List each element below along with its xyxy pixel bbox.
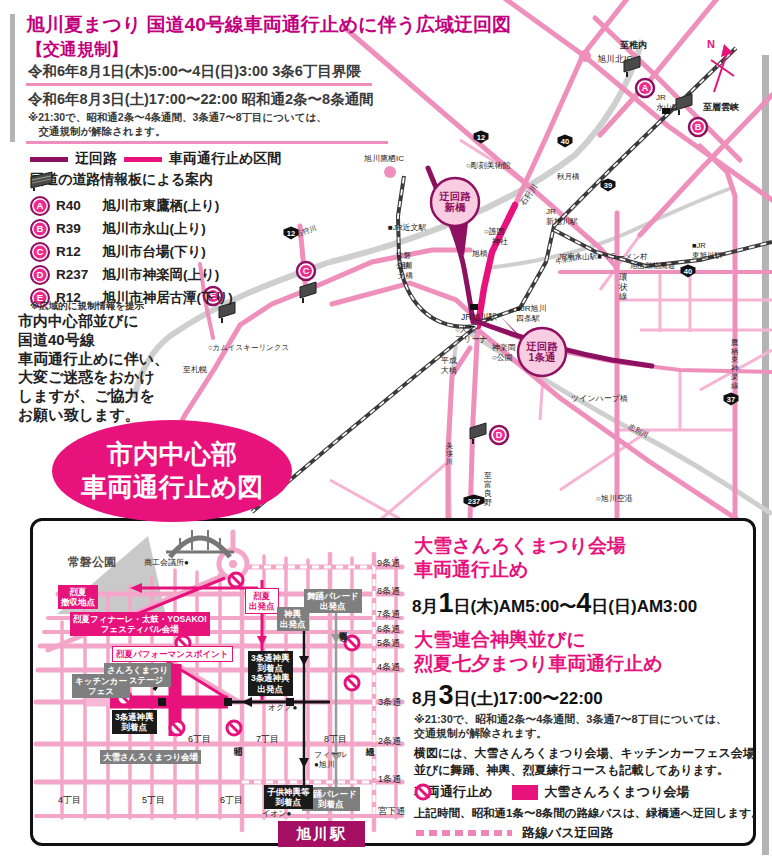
- apology-message: 市内中心部並びに国道40号線車両通行止めに伴い、大変ご迷惑をおかけしますが、ご協…: [18, 312, 169, 425]
- ellipse-line1: 市内中心部: [107, 439, 237, 470]
- no-entry-icon: [229, 573, 243, 587]
- venue-closure-heading-line1: 大雪さんろくまつり会場: [414, 534, 626, 558]
- bus-detour-line-sample: [416, 830, 512, 836]
- closed-label: 車両通行止め区間: [169, 150, 281, 168]
- no-entry-icon: [414, 783, 432, 801]
- no-entry-icon: [345, 636, 359, 650]
- date1-prefix: 8月: [412, 597, 438, 616]
- inset-text: 6丁目: [220, 795, 243, 805]
- inset-title-ellipse: 市内中心部 車両通行止め図: [52, 420, 292, 522]
- map-marker-letter: B: [695, 122, 702, 132]
- inset-text: オクノ●: [268, 703, 297, 712]
- regulation-note-line2: 交通規制が解除されます。: [28, 124, 327, 138]
- inset-text: イオン●: [262, 809, 291, 818]
- map-label: ■JR東旭川駅: [692, 241, 723, 260]
- route-shield-number: 40: [561, 137, 569, 146]
- venue-color-swatch: [512, 785, 538, 800]
- legend-lines-row: 迂回路 車両通行止め区間: [30, 150, 281, 168]
- legend-item: CR12旭川市台場(下り): [30, 240, 233, 263]
- no-entry-icon: [227, 721, 241, 735]
- map-label: 旭川鷹栖IC: [364, 154, 404, 163]
- inset-label: 旭川駅: [278, 821, 365, 847]
- no-entry-icon: [345, 676, 359, 690]
- map-label: ■JR近文駅: [388, 223, 427, 232]
- panel-paragraph: 横図には、大雪さんろくまつり会場、キッチンカーフェス会場 並びに舞踊、神輿、烈夏…: [414, 745, 755, 779]
- closed-line-sample: [124, 157, 162, 162]
- mikoshi-closure-heading-line1: 大雪連合神輿並びに: [414, 628, 663, 652]
- inset-text: 6条通: [377, 624, 400, 634]
- inset-label: 舞踊パレード出発点: [304, 589, 362, 613]
- station-square: [662, 108, 670, 114]
- inset-text: 4丁目: [58, 795, 81, 805]
- inset-text: 8条通: [377, 586, 400, 596]
- map-marker-letter: D: [496, 430, 503, 440]
- inset-text: 6丁目: [188, 734, 211, 744]
- date1-middle: 日(木)AM5:00〜: [454, 597, 577, 616]
- inset-text: 9条通: [377, 558, 400, 568]
- route-place: 旭川市台場(下り): [102, 243, 206, 261]
- map-label: ○カムイスキーリンクス: [208, 343, 289, 352]
- inset-label: 大雪さんろくまつり会場: [100, 750, 201, 764]
- legend-items: AR40旭川市東鷹栖(上り)BR39旭川市永山(上り)CR12旭川市台場(下り)…: [30, 194, 233, 309]
- inset-label: 子供神輿等到着点: [264, 785, 313, 809]
- route-shield-number: 12: [287, 229, 295, 238]
- map-label: 至富良野: [484, 471, 492, 507]
- venue-closure-heading: 大雪さんろくまつり会場 車両通行止め: [414, 534, 626, 583]
- inset-text: 1条通: [378, 774, 401, 784]
- north-label: N: [707, 38, 715, 50]
- inset-text: フィール: [314, 750, 347, 759]
- message-line: しますが、ご協力を: [18, 387, 169, 406]
- route-marker-A: A: [30, 196, 50, 216]
- regulation-note: ※21:30で、昭和通2条〜4条通間、3条通7〜8丁目については、 交通規制が解…: [28, 110, 327, 138]
- inset-text: 常磐公園: [68, 556, 116, 570]
- map-marker-letter: C: [303, 266, 310, 276]
- inset-label: キッチンカーフェス: [72, 674, 130, 698]
- rotary-center: [229, 560, 237, 568]
- underline: [26, 83, 372, 86]
- route-shield-number: 40: [684, 267, 692, 276]
- mikoshi-closure-heading: 大雪連合神輿並びに 烈夏七夕まつり車両通行止め: [414, 628, 663, 677]
- map-label: ツインハープ橋: [571, 394, 628, 403]
- inset-text: 宮下通: [378, 806, 405, 816]
- panel-note: ※21:30で、昭和通2条〜4条通間、3条通7〜8丁目については、 交通規制が解…: [414, 712, 727, 741]
- map-label: JR新旭川駅: [546, 207, 578, 226]
- bus-detour-label: 路線バス迂回路: [522, 824, 614, 842]
- closure-date-2: 8月3日(土)17:00〜22:00: [412, 680, 603, 711]
- route-marker-B: B: [30, 219, 50, 239]
- detour-callout-label: 迂回路1条通: [525, 340, 558, 363]
- route-place: 旭川市永山(上り): [102, 220, 206, 238]
- map-label: ○旭川空港: [596, 494, 633, 503]
- underline: [26, 141, 388, 144]
- inset-label: 烈夏撤収地点: [58, 585, 98, 609]
- map-label: 環状線: [618, 272, 628, 301]
- inset-text: 2条通: [378, 736, 401, 746]
- detour-label: 迂回路: [75, 150, 117, 168]
- message-line: 大変ご迷惑をおかけ: [18, 368, 169, 387]
- detour-line-sample: [30, 157, 68, 162]
- route-marker-D: D: [30, 265, 50, 285]
- venue-closure-heading-line2: 車両通行止め: [414, 558, 626, 582]
- date1-day-start: 1: [438, 588, 453, 618]
- inset-label: 烈夏パフォーマンスポイント: [112, 646, 233, 662]
- route-code: R40: [56, 198, 102, 213]
- road-info-board-icon: [300, 282, 316, 298]
- inset-legend-row: 車両通行止め 大雪さんろくまつり会場: [414, 783, 689, 801]
- route-shield-number: 39: [604, 181, 612, 190]
- inset-label: 3条通神輿到着点3条通神輿出発点: [248, 651, 293, 696]
- map-label: ○彫刻美術館: [466, 161, 511, 170]
- route-shield-number: 237: [468, 497, 481, 506]
- inset-text: 4条通: [377, 662, 400, 672]
- panel-paragraph-line1: 横図には、大雪さんろくまつり会場、キッチンカーフェス会場: [414, 745, 755, 762]
- date2-suffix: 日(土)17:00〜22:00: [454, 689, 603, 708]
- route-place: 旭川市東鷹栖(上り): [102, 197, 219, 215]
- date2-prefix: 8月: [412, 689, 438, 708]
- map-label: 平成大橋: [441, 356, 457, 375]
- message-line: 車両通行止めに伴い、: [18, 350, 169, 369]
- bus-note: 上記時間、昭和通1条〜8条間の路線バスは、緑橋通へ迂回します。: [414, 806, 762, 821]
- no-entry-icon: [170, 721, 184, 735]
- asahibashi-bridge-icon: [166, 530, 234, 557]
- legend-item: DR237旭川市神楽岡(上り): [30, 263, 233, 286]
- map-label: ■JR旭川四条駅: [516, 304, 547, 323]
- ellipse-line2: 車両通行止め図: [81, 472, 264, 503]
- ic-dot: [384, 166, 396, 178]
- inset-text: 3条通: [378, 697, 401, 707]
- date2-day: 3: [438, 680, 453, 710]
- route-shield-number: 37: [727, 395, 735, 404]
- mikoshi-closure-heading-line2: 烈夏七夕まつり車両通行止め: [414, 652, 663, 676]
- map-label: JR旭川駅: [461, 312, 497, 322]
- date1-suffix: 日(日)AM3:00: [591, 597, 697, 616]
- inset-text: 7条通: [377, 609, 400, 619]
- route-marker-C: C: [30, 242, 50, 262]
- inset-text: 商工会議所●: [144, 558, 189, 567]
- panel-note-line1: ※21:30で、昭和通2条〜4条通間、3条通7〜8丁目については、: [414, 712, 727, 726]
- panel-paragraph-line2: 並びに舞踊、神輿、烈夏練行コースも記載してあります。: [414, 762, 755, 779]
- map-label: 旭橋: [472, 249, 488, 258]
- map-label: 至層雲峡: [702, 102, 740, 112]
- regulation-line-2: 令和6年8月3日(土)17:00〜22:00 昭和通2条〜8条通間: [28, 90, 374, 109]
- map-label: 旭川大橋: [398, 261, 414, 280]
- map-label: ○ラーメン村: [605, 252, 648, 261]
- board-label: 国道の道路情報板による案内: [30, 171, 213, 189]
- inset-label: 3条通神輿到着点: [112, 710, 157, 734]
- route-code: R237: [56, 267, 102, 282]
- station-square: [470, 304, 478, 310]
- venue-label: 大雪さんろくまつり会場: [544, 783, 689, 801]
- map-marker-letter: A: [642, 83, 649, 93]
- inset-label: 神輿出発点: [277, 607, 309, 631]
- map-label: ○護国 神社: [484, 227, 508, 246]
- map-label: 旭山動物園通: [630, 261, 676, 270]
- date1-day-end: 4: [576, 588, 591, 618]
- route-code: R12: [56, 244, 102, 259]
- inset-text: 5条通: [377, 638, 400, 648]
- legend-board-row: 国道の道路情報板による案内: [30, 171, 213, 189]
- message-line: 国道40号線: [18, 331, 169, 350]
- panel-note-line2: 交通規制が解除されます。: [414, 726, 727, 740]
- message-line: 市内中心部並びに: [18, 312, 169, 331]
- legend-item: BR39旭川市永山(上り): [30, 217, 233, 240]
- section-heading: 【交通規制】: [26, 38, 128, 61]
- map-label: 美瑛川: [446, 442, 453, 465]
- page-title: 旭川夏まつり 国道40号線車両通行止めに伴う広域迂回図: [26, 12, 626, 38]
- inset-text: ●旭川: [314, 760, 335, 769]
- road-info-board-icon: [30, 171, 56, 191]
- poster: { "colors":{"heading_magenta":"#c2007d",…: [0, 0, 772, 859]
- inset-text: 7丁目: [256, 734, 279, 744]
- closure-date-1: 8月1日(木)AM5:00〜4日(日)AM3:00: [412, 588, 697, 619]
- route-code: R39: [56, 221, 102, 236]
- route-place: 旭川市神楽岡(上り): [102, 266, 219, 284]
- map-label: 至札幌: [183, 365, 207, 374]
- inset-label: 烈夏出発点: [245, 588, 279, 614]
- route-shield-number: 12: [477, 133, 485, 142]
- inset-text: 5丁目: [142, 795, 165, 805]
- regulation-line-1: 令和6年8月1日(木)5:00〜4日(日)3:00 3条6丁目界隈: [28, 62, 361, 81]
- inset-text: 8丁目: [324, 734, 347, 744]
- map-label: 鷹栖東神楽線: [730, 338, 739, 390]
- inset-label: 烈夏フィナーレ・太鼓・YOSAKOIフェスティバル会場: [70, 612, 210, 636]
- map-label: 至稚内: [619, 40, 647, 50]
- map-label: 秋月橋: [557, 172, 580, 181]
- legend-item: AR40旭川市東鷹栖(上り): [30, 194, 233, 217]
- regulation-note-line1: ※21:30で、昭和通2条〜4条通間、3条通7〜8丁目については、: [28, 110, 327, 124]
- ic-dot: [579, 50, 591, 62]
- map-label: ○大雪アリーナ: [455, 325, 488, 344]
- map-label: 神楽岡○公園: [491, 343, 516, 362]
- bus-detour-legend: 路線バス迂回路: [416, 824, 614, 842]
